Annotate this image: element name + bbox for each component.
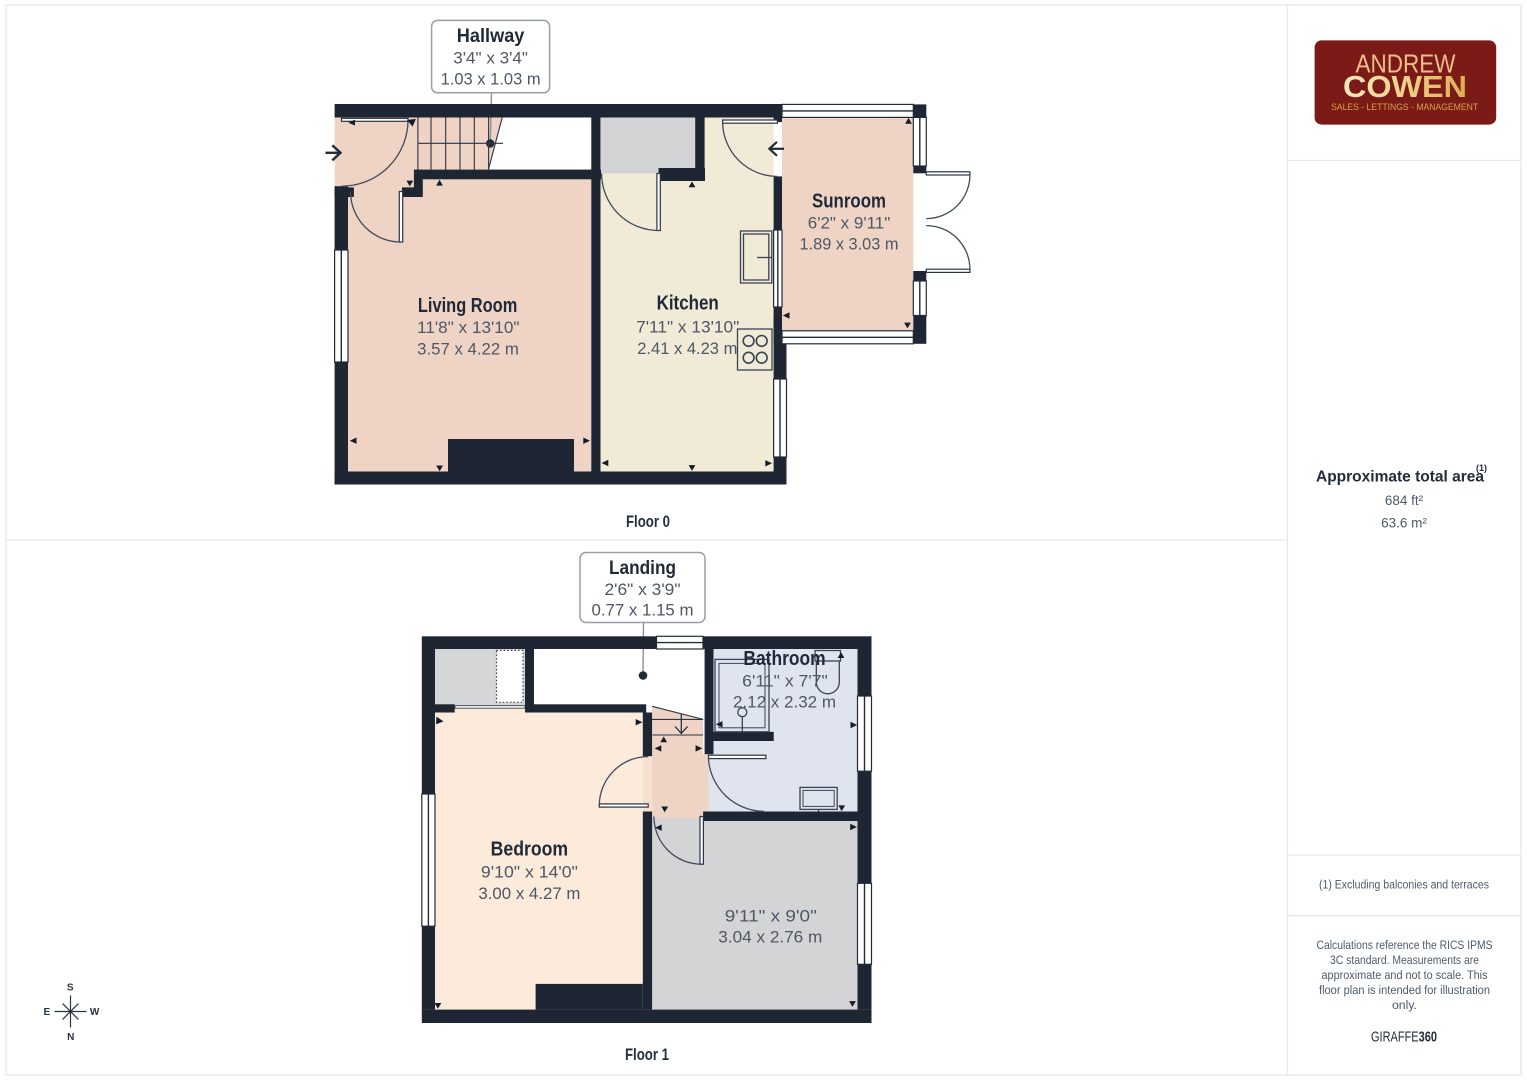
svg-text:6'2" x 9'11": 6'2" x 9'11": [808, 214, 891, 233]
svg-text:(1) Excluding balconies and te: (1) Excluding balconies and terraces: [1319, 878, 1489, 892]
svg-text:Hallway: Hallway: [457, 25, 525, 47]
svg-text:Bathroom: Bathroom: [743, 647, 825, 670]
svg-text:GIRAFFE360: GIRAFFE360: [1371, 1030, 1437, 1046]
svg-text:E: E: [43, 1007, 50, 1018]
svg-text:Landing: Landing: [609, 557, 676, 579]
svg-text:Bedroom: Bedroom: [491, 837, 569, 860]
svg-text:0.77 x 1.15 m: 0.77 x 1.15 m: [592, 601, 694, 620]
svg-text:Kitchen: Kitchen: [657, 292, 719, 315]
svg-text:7'11" x 13'10": 7'11" x 13'10": [636, 318, 739, 337]
svg-text:1.03 x 1.03 m: 1.03 x 1.03 m: [441, 70, 541, 89]
svg-text:Calculations reference the RIC: Calculations reference the RICS IPMS: [1317, 938, 1493, 952]
svg-text:3.57 x 4.22 m: 3.57 x 4.22 m: [417, 340, 519, 359]
svg-text:Living Room: Living Room: [418, 294, 517, 317]
svg-text:floor plan is intended for ill: floor plan is intended for illustration: [1319, 983, 1490, 997]
svg-text:SALES - LETTINGS - MANAGEMENT: SALES - LETTINGS - MANAGEMENT: [1331, 102, 1478, 112]
svg-text:2'6" x 3'9": 2'6" x 3'9": [605, 580, 681, 599]
svg-text:S: S: [67, 983, 74, 994]
svg-text:1.89 x 3.03 m: 1.89 x 3.03 m: [800, 235, 899, 254]
svg-text:Approximate total area: Approximate total area: [1316, 468, 1484, 485]
svg-text:684 ft²: 684 ft²: [1385, 493, 1424, 508]
svg-text:only.: only.: [1392, 998, 1417, 1012]
svg-text:Floor 1: Floor 1: [625, 1045, 669, 1064]
svg-text:3.00 x 4.27 m: 3.00 x 4.27 m: [478, 884, 580, 903]
svg-text:N: N: [67, 1032, 74, 1043]
svg-text:COWEN: COWEN: [1343, 69, 1467, 104]
svg-text:3'4" x 3'4": 3'4" x 3'4": [453, 49, 528, 68]
svg-text:2.41 x 4.23 m: 2.41 x 4.23 m: [637, 339, 737, 358]
svg-text:63.6 m²: 63.6 m²: [1381, 515, 1427, 530]
svg-text:Floor 0: Floor 0: [626, 512, 670, 531]
svg-text:11'8" x 13'10": 11'8" x 13'10": [417, 318, 519, 337]
svg-text:(1): (1): [1476, 463, 1487, 473]
svg-text:6'11" x 7'7": 6'11" x 7'7": [742, 671, 828, 690]
svg-text:3C standard. Measurements are: 3C standard. Measurements are: [1330, 953, 1479, 967]
svg-text:Sunroom: Sunroom: [812, 190, 886, 213]
svg-text:approximate and not to scale.: approximate and not to scale. This: [1322, 968, 1488, 982]
svg-text:9'10" x 14'0": 9'10" x 14'0": [481, 863, 578, 882]
svg-text:2.12 x 2.32 m: 2.12 x 2.32 m: [733, 693, 836, 712]
svg-text:3.04 x 2.76 m: 3.04 x 2.76 m: [718, 928, 822, 947]
svg-text:9'11" x 9'0": 9'11" x 9'0": [725, 907, 817, 926]
svg-text:W: W: [90, 1007, 100, 1018]
